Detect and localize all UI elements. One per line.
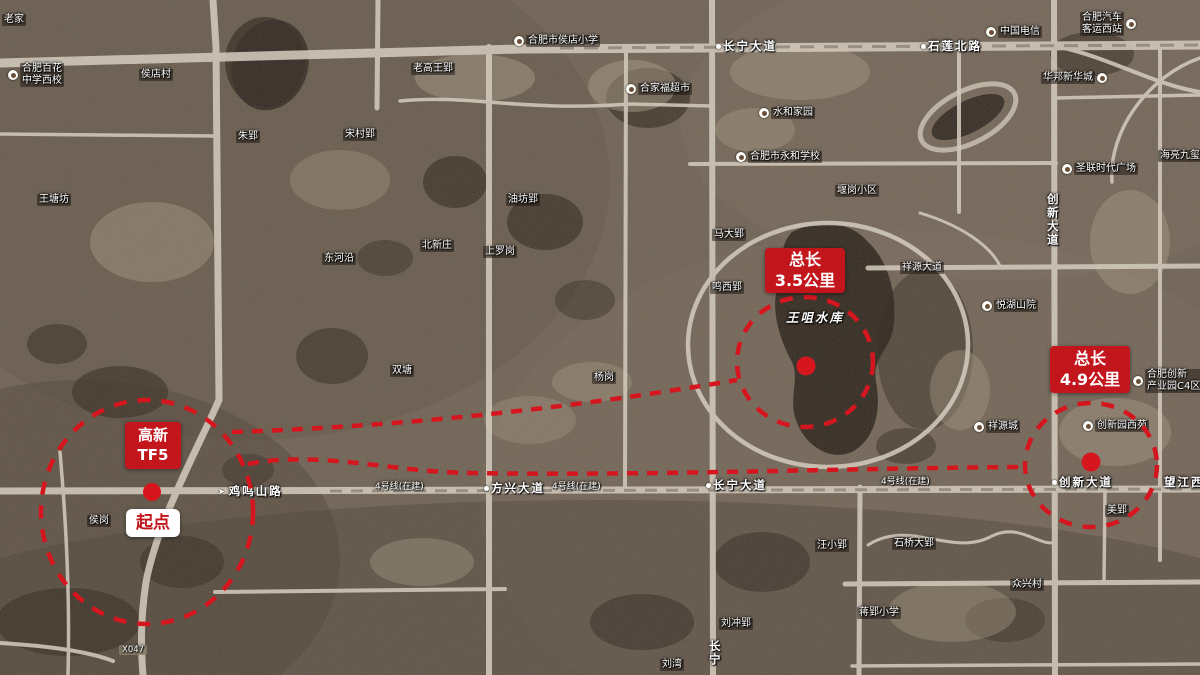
route-length-line2: 3.5公里: [775, 271, 835, 292]
route-dashed-line: [248, 459, 1024, 473]
start-point-badge: 起点: [126, 509, 180, 537]
route-length-line2: 4.9公里: [1060, 370, 1120, 391]
route-length-line1: 总长: [1074, 349, 1106, 370]
route-point-marker: [797, 357, 816, 376]
route-length-badge-4-9km: 总长 4.9公里: [1050, 346, 1130, 393]
route-point-marker: [143, 483, 161, 501]
area-badge-line1: 高新: [138, 426, 168, 446]
satellite-map: 老家合肥百花中学西校侯店村朱郢宋村郢老高王郢王塘坊合肥市侯店小学长宁大道石莲北路…: [0, 0, 1200, 675]
route-dashed-line: [232, 380, 737, 432]
area-badge-line2: TF5: [138, 446, 169, 466]
route-length-line1: 总长: [789, 250, 821, 271]
area-badge-gaoxin-tf5: 高新 TF5: [125, 422, 181, 469]
route-point-marker: [1082, 453, 1101, 472]
route-length-badge-3-5km: 总长 3.5公里: [765, 248, 845, 293]
route-overlay: [0, 0, 1200, 675]
start-point-label: 起点: [136, 512, 170, 534]
